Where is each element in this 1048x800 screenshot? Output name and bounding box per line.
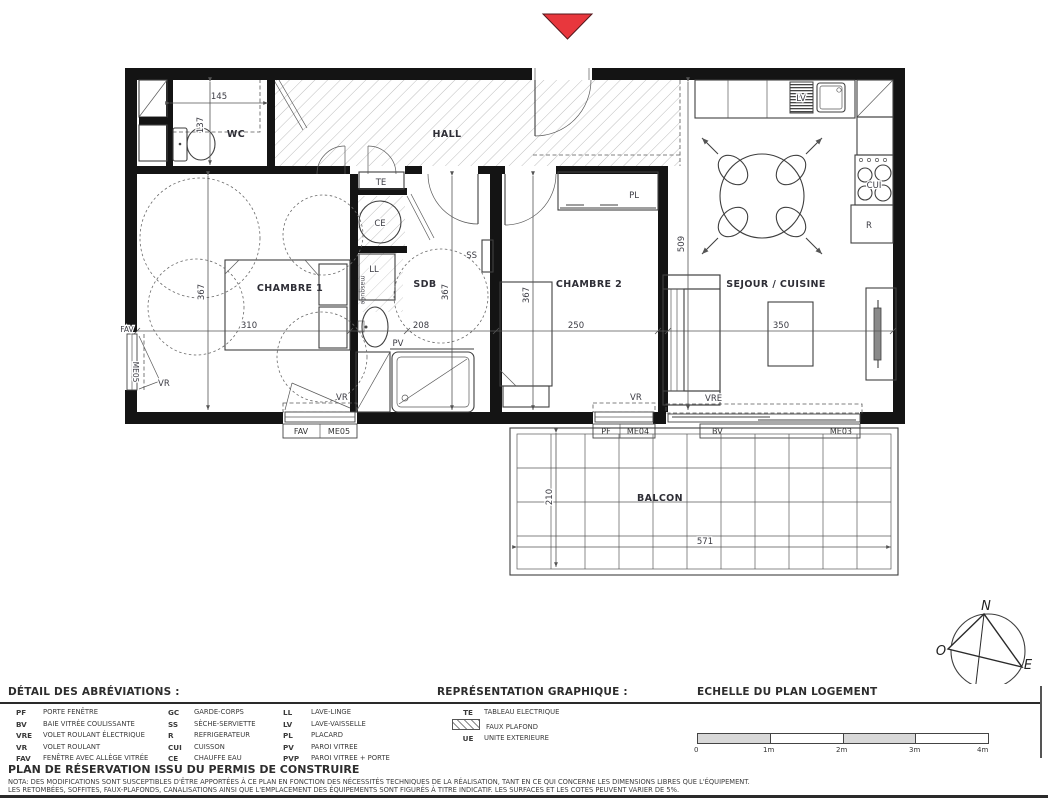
window-ch1-type: FAV xyxy=(294,427,309,436)
compass-rose-icon: N O E S xyxy=(936,599,1033,684)
scale-tick-1m: 1m xyxy=(763,746,774,754)
sofa xyxy=(663,275,720,405)
label-masquee: masquée xyxy=(359,275,367,304)
window-left-shutter: VR xyxy=(158,379,170,389)
faux-plafond-hatch-swatch xyxy=(452,719,480,730)
legend-panel: DÉTAIL DES ABRÉVIATIONS : REPRÉSENTATION… xyxy=(0,684,1048,800)
plan-title: PLAN DE RÉSERVATION ISSU DU PERMIS DE CO… xyxy=(8,763,359,776)
towel-dryer: SS xyxy=(466,240,493,272)
graphics-title: REPRÉSENTATION GRAPHIQUE : xyxy=(437,686,628,698)
scale-bar xyxy=(697,733,989,744)
graphics-row: FAUX PLAFOND xyxy=(452,719,559,734)
dim-sejour-width: 350 xyxy=(773,321,789,331)
abbrev-row: SSSÈCHE-SERVIETTE xyxy=(168,719,256,731)
shower: PV xyxy=(390,339,474,412)
tv-unit xyxy=(866,288,896,380)
label-pv: PV xyxy=(393,339,404,349)
window-chambre1-fav: VR FAV ME05 xyxy=(283,383,357,438)
floor-plan-drawing: WC 145 137 HALL LV xyxy=(0,0,1048,684)
room-label-balcon: BALCON xyxy=(637,493,683,504)
abbrev-row: LVLAVE-VAISSELLE xyxy=(283,719,390,731)
label-pl: PL xyxy=(629,191,639,201)
window-ch1-code: ME05 xyxy=(328,427,350,436)
scale-tick-0: 0 xyxy=(694,746,698,754)
graphics-column: TETABLEAU ELECTRIQUE FAUX PLAFOND UEUNIT… xyxy=(452,707,559,745)
graphics-row: TETABLEAU ELECTRIQUE xyxy=(452,707,559,719)
balcony-tiles xyxy=(517,434,891,569)
label-te: TE xyxy=(375,178,387,188)
abbrev-column-3: LLLAVE-LINGE LVLAVE-VAISSELLE PLPLACARD … xyxy=(283,707,390,765)
placard: PL xyxy=(558,172,658,210)
kitchen: LV CUI R xyxy=(695,80,893,243)
graphics-row: UEUNITE EXTERIEURE xyxy=(452,733,559,745)
compass-e: E xyxy=(1024,658,1033,673)
sink xyxy=(817,83,845,112)
balcony: BALCON 210 571 xyxy=(510,428,898,575)
abbrev-row: VREVOLET ROULANT ÉLECTRIQUE xyxy=(16,730,148,742)
dim-balcon-width: 571 xyxy=(697,537,713,547)
dishwasher: LV xyxy=(790,82,813,113)
floor-plan-page: WC 145 137 HALL LV xyxy=(0,0,1048,800)
compass-o: O xyxy=(936,644,946,659)
scale-tick-3m: 3m xyxy=(909,746,920,754)
entrance-marker-icon xyxy=(543,14,592,39)
room-label-hall: HALL xyxy=(432,129,461,140)
room-label-wc: WC xyxy=(227,129,245,140)
window-left-code: ME05 xyxy=(131,362,140,383)
window-ch1-shutter: VR xyxy=(336,393,348,403)
label-cui: CUI xyxy=(867,181,882,191)
scale-tick-2m: 2m xyxy=(836,746,847,754)
window-left-type: FAV xyxy=(120,325,134,334)
cooktop: CUI xyxy=(855,155,893,205)
dim-ch2-width: 250 xyxy=(568,321,584,331)
chambre1-bed xyxy=(225,260,350,350)
abbrev-row: LLLAVE-LINGE xyxy=(283,707,390,719)
label-ss: SS xyxy=(466,251,477,261)
dining-table xyxy=(702,138,822,254)
window-bay-bv: VRE BV ME03 xyxy=(666,394,862,438)
legend-top-rule xyxy=(0,702,1041,704)
scale-tick-4m: 4m xyxy=(977,746,988,754)
dim-balcon-depth: 210 xyxy=(545,489,555,505)
room-label-sejour: SEJOUR / CUISINE xyxy=(726,279,826,290)
abbrev-column-2: GCGARDE-CORPS SSSÈCHE-SERVIETTE RREFRIGE… xyxy=(168,707,256,765)
hall-faux-plafond-hatch xyxy=(172,76,680,312)
label-r: R xyxy=(866,221,872,231)
label-ll: LL xyxy=(369,265,379,275)
window-left-fav: FAV ME05 VR xyxy=(120,325,170,390)
dim-wc-width: 145 xyxy=(211,92,227,102)
washbasin xyxy=(358,307,388,347)
abbrev-row: BVBAIE VITRÉE COULISSANTE xyxy=(16,719,148,731)
dim-sdb-width: 208 xyxy=(413,321,429,331)
abbrev-column-1: PFPORTE FENÊTRE BVBAIE VITRÉE COULISSANT… xyxy=(16,707,148,765)
window-ch2-shutter: VR xyxy=(630,393,642,403)
refrigerator: R xyxy=(851,205,893,243)
abbrev-row: GCGARDE-CORPS xyxy=(168,707,256,719)
dim-ch2-depth: 367 xyxy=(522,287,532,303)
dim-ch1-width: 310 xyxy=(241,321,257,331)
legend-bottom-rule xyxy=(0,795,1048,798)
dim-sdb-depth: 367 xyxy=(441,284,451,300)
window-chambre2-pf: VR PF ME04 xyxy=(593,393,655,438)
abbrev-row: RREFRIGERATEUR xyxy=(168,730,256,742)
scale-title: ECHELLE DU PLAN LOGEMENT xyxy=(697,686,877,698)
room-label-sdb: SDB xyxy=(413,279,436,290)
corner-cabinet xyxy=(857,80,893,155)
room-label-chambre2: CHAMBRE 2 xyxy=(556,279,622,290)
toilet xyxy=(173,128,215,161)
abbrev-row: CUICUISSON xyxy=(168,742,256,754)
window-bay-shutter: VRE xyxy=(705,394,722,404)
dim-ch1-depth: 367 xyxy=(197,284,207,300)
nota-line-2: LES RETOMBÉES, SOFFITES, FAUX-PLAFONDS, … xyxy=(8,786,679,794)
duct-shaft xyxy=(356,352,390,412)
abbrev-row: PLPLACARD xyxy=(283,730,390,742)
dim-wc-depth: 137 xyxy=(196,117,206,133)
abbrev-row: VRVOLET ROULANT xyxy=(16,742,148,754)
legend-right-rule xyxy=(1040,686,1042,758)
label-ce: CE xyxy=(374,219,385,229)
abbrev-row: PVPAROI VITREE xyxy=(283,742,390,754)
dim-sejour-depth: 509 xyxy=(677,236,687,252)
nota-line-1: NOTA: DES MODIFICATIONS SONT SUSCEPTIBLE… xyxy=(8,778,750,786)
abbrev-row: PFPORTE FENÊTRE xyxy=(16,707,148,719)
abbreviations-title: DÉTAIL DES ABRÉVIATIONS : xyxy=(8,686,180,698)
label-lv: LV xyxy=(796,94,806,104)
coffee-table xyxy=(768,302,813,366)
room-label-chambre1: CHAMBRE 1 xyxy=(257,283,323,294)
compass-n: N xyxy=(981,599,991,614)
